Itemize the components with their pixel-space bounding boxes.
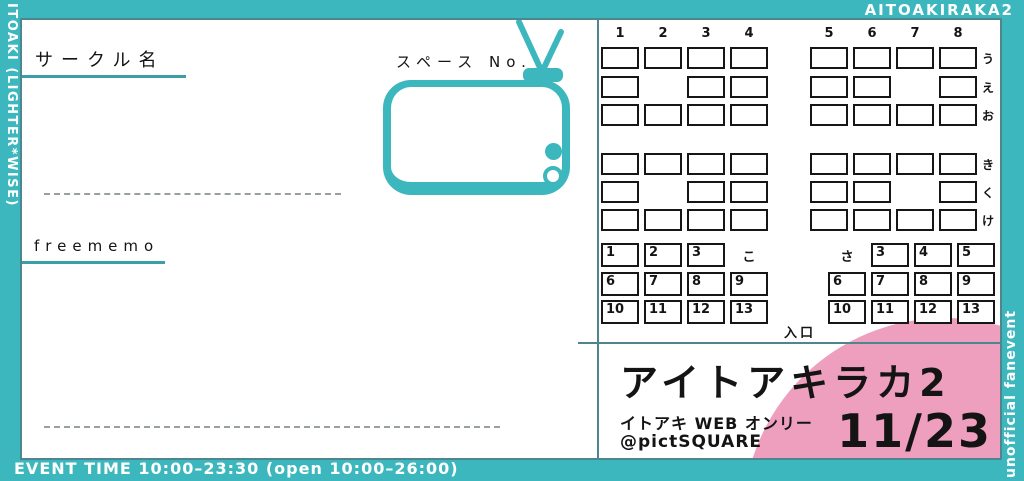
numbered-space-box: 3 (871, 243, 909, 267)
seat-box (939, 181, 977, 203)
unofficial-fanevent-text: unofficial fanevent (1003, 310, 1019, 478)
seat-box (601, 181, 639, 203)
column-number: 6 (853, 26, 891, 42)
space-number: 13 (962, 302, 980, 317)
numbered-space-box: 6 (828, 272, 866, 296)
block-label: さ (828, 246, 866, 262)
seat-box (896, 153, 934, 175)
card-frame: サークル名 スペース No. freememo 12345678ううええおおきき… (20, 18, 1002, 460)
space-number: 4 (919, 245, 928, 260)
seat-box (687, 76, 725, 98)
row-label-right: お (980, 107, 996, 123)
seat-box (730, 76, 768, 98)
numbered-space-box: 13 (730, 300, 768, 324)
seat-box (939, 104, 977, 126)
space-number: 9 (962, 274, 971, 289)
space-number: 11 (876, 302, 894, 317)
seat-box (644, 209, 682, 231)
event-time-text: EVENT TIME 10:00–23:30 (open 10:00–26:00… (14, 459, 459, 478)
numbered-space-box: 9 (957, 272, 995, 296)
column-number: 2 (644, 26, 682, 42)
seat-box (939, 209, 977, 231)
seat-box (810, 76, 848, 98)
numbered-space-box: 6 (601, 272, 639, 296)
numbered-space-box: 11 (871, 300, 909, 324)
row-label-right: え (980, 79, 996, 95)
seat-box (853, 47, 891, 69)
seat-box (601, 76, 639, 98)
seat-box (687, 181, 725, 203)
space-number: 9 (735, 274, 744, 289)
seat-box (810, 181, 848, 203)
numbered-space-box: 10 (828, 300, 866, 324)
numbered-space-box: 11 (644, 300, 682, 324)
numbered-space-box: 5 (957, 243, 995, 267)
seat-box (853, 76, 891, 98)
column-number: 7 (896, 26, 934, 42)
space-number: 2 (649, 245, 658, 260)
seat-box (810, 47, 848, 69)
column-number: 3 (687, 26, 725, 42)
seat-box (939, 76, 977, 98)
seat-box (644, 153, 682, 175)
row-label-right: う (980, 50, 996, 66)
row-label-right: き (980, 156, 996, 172)
seat-box (601, 153, 639, 175)
space-number: 5 (962, 245, 971, 260)
numbered-space-box: 7 (644, 272, 682, 296)
column-number: 5 (810, 26, 848, 42)
space-number: 8 (919, 274, 928, 289)
column-number: 1 (601, 26, 639, 42)
seat-box (896, 47, 934, 69)
seat-box (730, 209, 768, 231)
entrance-label: 入口 (774, 322, 826, 338)
seat-box (644, 104, 682, 126)
seat-box (730, 104, 768, 126)
seat-box (853, 153, 891, 175)
event-subtitle-online: イトアキ WEB オンリー (620, 410, 813, 434)
row-label-right: く (980, 184, 996, 200)
left-margin-credit-text: ITOAKI (LIGHTER*WISE) (4, 3, 19, 207)
space-number: 6 (606, 274, 615, 289)
space-number: 7 (876, 274, 885, 289)
numbered-space-box: 4 (914, 243, 952, 267)
seat-box (601, 104, 639, 126)
seat-box (853, 181, 891, 203)
seat-box (810, 153, 848, 175)
seat-box (896, 209, 934, 231)
seat-box (853, 104, 891, 126)
space-number: 1 (606, 245, 615, 260)
seat-box (730, 153, 768, 175)
block-label: こ (730, 246, 768, 262)
column-number: 8 (939, 26, 977, 42)
seat-box (644, 47, 682, 69)
seat-box (601, 209, 639, 231)
seat-box (687, 104, 725, 126)
numbered-space-box: 2 (644, 243, 682, 267)
space-number: 13 (735, 302, 753, 317)
numbered-space-box: 7 (871, 272, 909, 296)
seat-box (810, 209, 848, 231)
event-name-header: AITOAKIRAKA2 (865, 1, 1014, 19)
numbered-space-box: 8 (914, 272, 952, 296)
numbered-space-box: 12 (687, 300, 725, 324)
seat-box (730, 47, 768, 69)
numbered-space-box: 3 (687, 243, 725, 267)
seat-box (687, 153, 725, 175)
seat-box (853, 209, 891, 231)
horizontal-divider (578, 342, 1000, 344)
numbered-space-box: 8 (687, 272, 725, 296)
space-number: 11 (649, 302, 667, 317)
seat-box (896, 104, 934, 126)
numbered-space-box: 1 (601, 243, 639, 267)
numbered-space-box: 10 (601, 300, 639, 324)
space-number: 7 (649, 274, 658, 289)
space-number: 12 (919, 302, 937, 317)
seat-box (939, 47, 977, 69)
seat-box (687, 209, 725, 231)
event-platform-handle: @pictSQUARE (620, 432, 762, 452)
space-number: 3 (876, 245, 885, 260)
vertical-divider (597, 20, 599, 458)
space-number: 6 (833, 274, 842, 289)
numbered-space-box: 9 (730, 272, 768, 296)
flyer-background: ITOAKI (LIGHTER*WISE) AITOAKIRAKA2 unoff… (0, 0, 1024, 481)
numbered-space-box: 13 (957, 300, 995, 324)
seat-box (810, 104, 848, 126)
seat-box (687, 47, 725, 69)
space-number: 10 (833, 302, 851, 317)
space-number: 10 (606, 302, 624, 317)
numbered-space-box: 12 (914, 300, 952, 324)
row-label-right: け (980, 212, 996, 228)
space-number: 8 (692, 274, 701, 289)
seat-box (730, 181, 768, 203)
seat-box (601, 47, 639, 69)
event-title: アイトアキラカ2 (620, 352, 951, 407)
space-number: 12 (692, 302, 710, 317)
column-number: 4 (730, 26, 768, 42)
space-number: 3 (692, 245, 701, 260)
event-date: 11/23 (837, 404, 992, 458)
seat-box (939, 153, 977, 175)
